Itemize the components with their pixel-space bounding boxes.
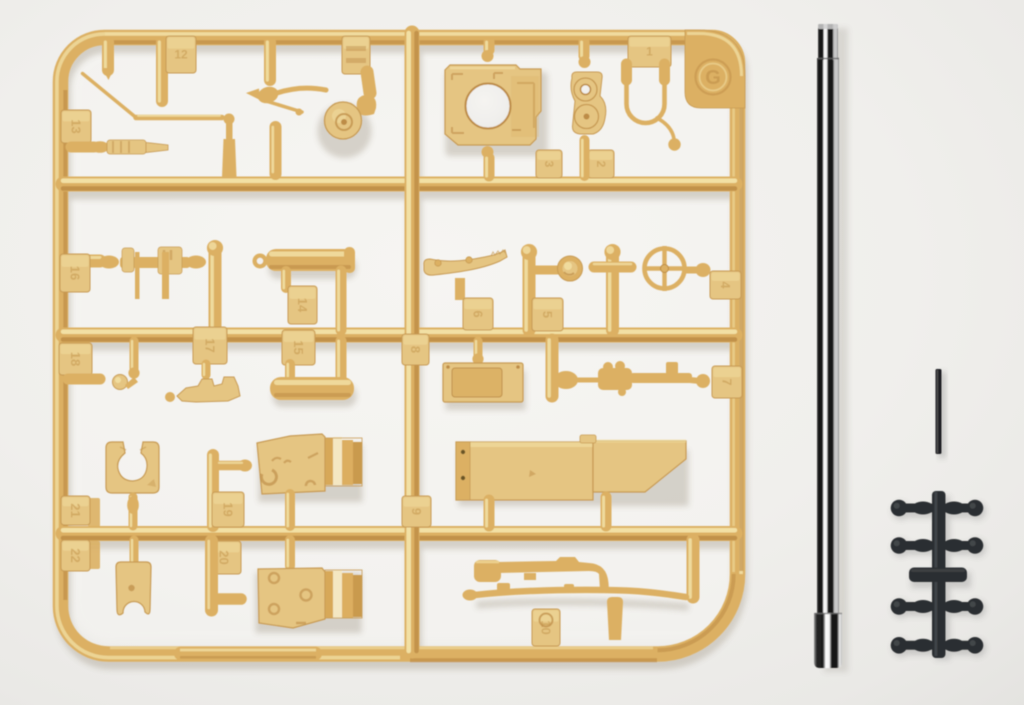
svg-text:5: 5 — [540, 311, 555, 318]
svg-text:9: 9 — [409, 508, 424, 515]
svg-text:4: 4 — [718, 281, 733, 289]
svg-text:7: 7 — [720, 378, 735, 385]
svg-text:8: 8 — [408, 346, 423, 353]
svg-text:G: G — [705, 67, 721, 89]
svg-text:13: 13 — [69, 119, 84, 133]
svg-text:19: 19 — [221, 502, 236, 516]
svg-text:21: 21 — [68, 503, 83, 517]
svg-text:6: 6 — [471, 310, 486, 317]
svg-text:3: 3 — [542, 161, 556, 168]
svg-text:12: 12 — [174, 48, 188, 62]
svg-text:20: 20 — [217, 550, 232, 564]
svg-text:2: 2 — [594, 161, 608, 168]
svg-text:17: 17 — [203, 338, 218, 352]
svg-text:22: 22 — [68, 548, 83, 562]
svg-text:14: 14 — [295, 298, 310, 313]
svg-text:1: 1 — [646, 45, 653, 59]
svg-text:18: 18 — [68, 352, 83, 366]
svg-text:16: 16 — [68, 266, 83, 280]
svg-text:15: 15 — [291, 340, 306, 354]
